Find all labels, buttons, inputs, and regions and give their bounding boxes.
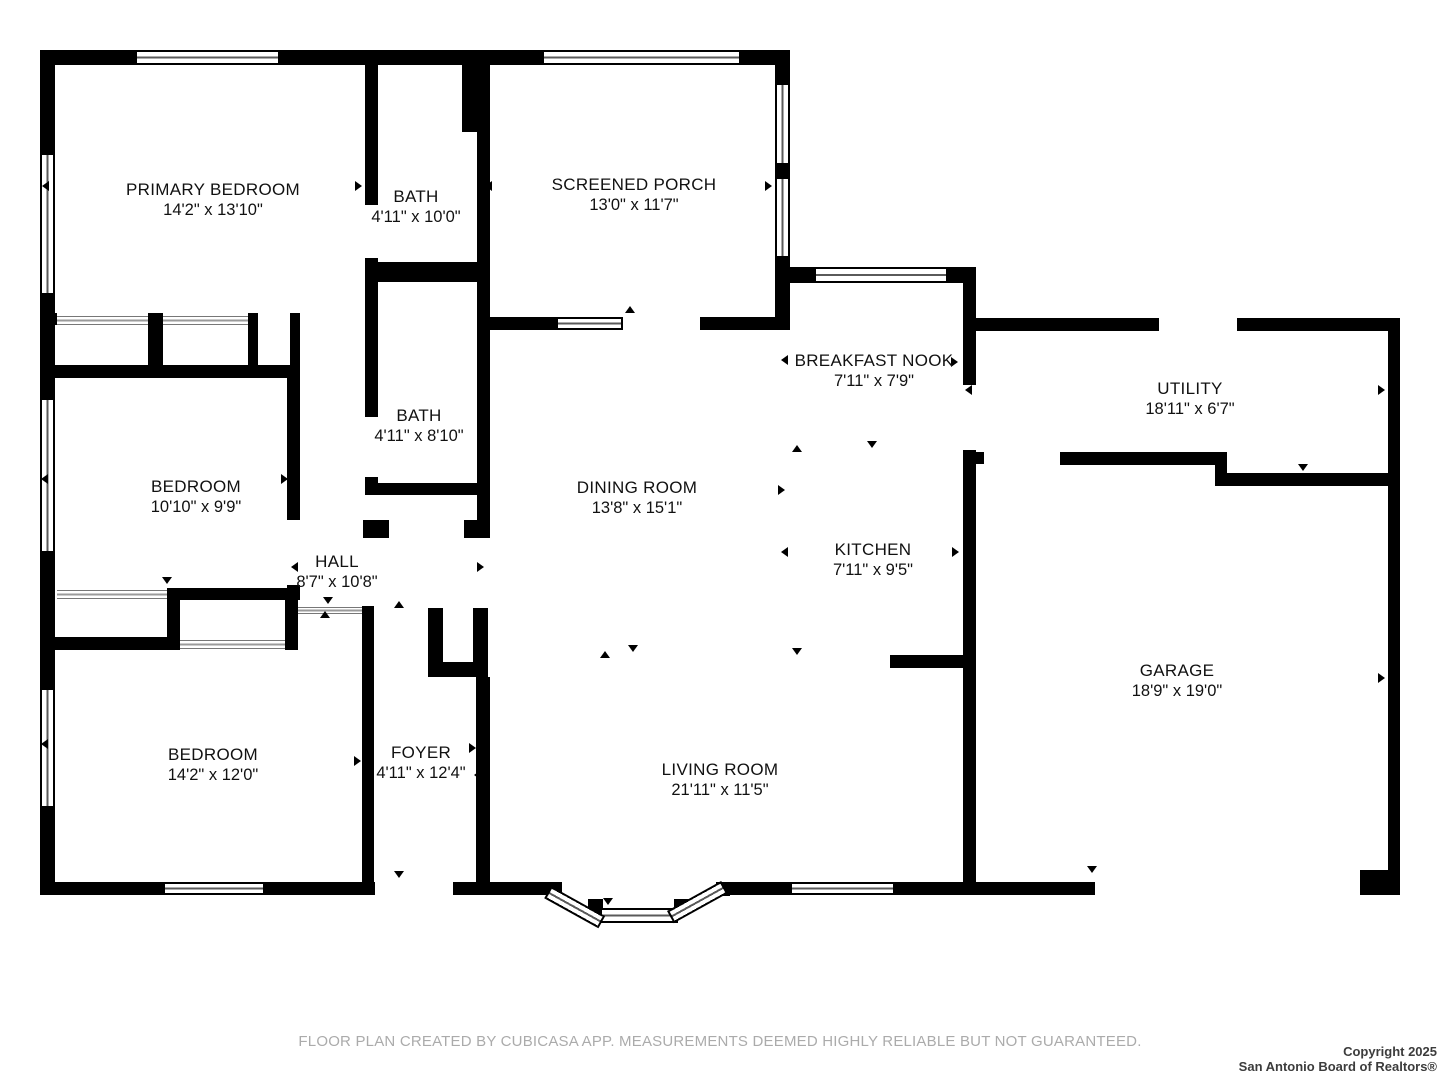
wall-segment <box>895 882 1095 895</box>
door-swing-marker-right <box>469 743 476 753</box>
closet-door-line <box>180 640 285 649</box>
wall-segment <box>365 262 490 282</box>
room-label-kitchen: KITCHEN7'11" x 9'5" <box>833 539 913 581</box>
disclaimer-text: FLOOR PLAN CREATED BY CUBICASA APP. MEAS… <box>0 1033 1440 1050</box>
room-label-bedroom-2: BEDROOM10'10" x 9'9" <box>151 476 242 518</box>
wall-segment <box>462 50 490 132</box>
room-label-dining-room: DINING ROOM13'8" x 15'1" <box>577 477 697 519</box>
door-swing-marker-left <box>965 385 972 395</box>
wall-segment <box>40 637 180 650</box>
wall-segment <box>48 313 57 325</box>
door-swing-marker-right <box>281 474 288 484</box>
door-swing-marker-up <box>625 306 635 313</box>
wall-segment <box>788 267 814 283</box>
door-swing-marker-up <box>792 445 802 452</box>
window <box>775 177 790 258</box>
wall-segment <box>890 655 976 668</box>
room-dimensions: 7'11" x 7'9" <box>795 371 954 392</box>
room-name: PRIMARY BEDROOM <box>126 179 300 200</box>
door-swing-marker-right <box>477 562 484 572</box>
closet-door-line <box>57 590 167 599</box>
door-swing-marker-right <box>765 181 772 191</box>
door-swing-marker-down <box>867 441 877 448</box>
room-name: UTILITY <box>1145 378 1234 399</box>
room-dimensions: 13'0" x 11'7" <box>552 195 717 216</box>
door-swing-marker-right <box>778 485 785 495</box>
wall-segment <box>1227 473 1388 486</box>
wall-segment <box>453 882 556 895</box>
room-name: LIVING ROOM <box>662 759 779 780</box>
copyright-notice: Copyright 2025 San Antonio Board of Real… <box>1239 1044 1437 1074</box>
room-label-screened-porch: SCREENED PORCH13'0" x 11'7" <box>552 174 717 216</box>
wall-segment <box>963 450 976 895</box>
door-swing-marker-up <box>163 367 173 374</box>
wall-segment <box>1237 318 1400 331</box>
wall-segment <box>1060 452 1227 465</box>
room-name: GARAGE <box>1132 660 1223 681</box>
wall-segment <box>428 662 488 677</box>
wall-segment <box>1360 870 1388 895</box>
room-dimensions: 13'8" x 15'1" <box>577 498 697 519</box>
door-swing-marker-right <box>354 756 361 766</box>
room-name: BEDROOM <box>168 744 259 765</box>
wall-segment <box>365 65 378 205</box>
wall-segment <box>287 378 300 520</box>
room-dimensions: 8'7" x 10'8" <box>296 572 377 593</box>
room-label-bath-2: BATH4'11" x 8'10" <box>374 405 463 447</box>
door-swing-marker-right <box>1378 673 1385 683</box>
wall-segment <box>700 317 790 330</box>
room-label-hall: HALL8'7" x 10'8" <box>296 551 377 593</box>
door-swing-marker-up <box>325 55 335 62</box>
door-swing-marker-left <box>363 744 370 754</box>
door-swing-marker-left <box>41 474 48 484</box>
copyright-line1: Copyright 2025 <box>1239 1044 1437 1059</box>
room-label-foyer: FOYER4'11" x 12'4" <box>376 742 465 784</box>
closet-door-line <box>298 607 362 614</box>
door-swing-marker-right <box>952 547 959 557</box>
room-label-breakfast-nook: BREAKFAST NOOK7'11" x 7'9" <box>795 350 954 392</box>
door-swing-marker-left <box>42 181 49 191</box>
wall-segment <box>973 318 1159 331</box>
window <box>814 267 948 283</box>
wall-segment <box>1388 318 1400 895</box>
window <box>163 882 265 895</box>
wall-segment <box>365 483 490 495</box>
room-dimensions: 18'9" x 19'0" <box>1132 681 1223 702</box>
wall-segment <box>365 285 378 417</box>
window <box>135 50 280 65</box>
wall-segment <box>477 130 490 265</box>
door-swing-marker-right <box>355 181 362 191</box>
window <box>775 83 790 165</box>
floor-plan: PRIMARY BEDROOM14'2" x 13'10"BATH4'11" x… <box>0 0 1440 1080</box>
room-name: BEDROOM <box>151 476 242 497</box>
wall-segment <box>975 452 984 464</box>
door-swing-marker-down <box>162 577 172 584</box>
door-swing-marker-down <box>1298 464 1308 471</box>
room-name: FOYER <box>376 742 465 763</box>
room-dimensions: 4'11" x 8'10" <box>374 426 463 447</box>
room-label-living-room: LIVING ROOM21'11" x 11'5" <box>662 759 779 801</box>
door-swing-marker-down <box>792 648 802 655</box>
door-swing-marker-down <box>323 597 333 604</box>
door-swing-marker-left <box>781 355 788 365</box>
closet-door-line <box>57 316 148 325</box>
closet-door-line <box>163 316 248 325</box>
wall-segment <box>285 588 298 650</box>
door-swing-marker-down <box>603 898 613 905</box>
room-name: HALL <box>296 551 377 572</box>
door-swing-marker-down <box>394 871 404 878</box>
door-swing-marker-up <box>600 651 610 658</box>
room-name: SCREENED PORCH <box>552 174 717 195</box>
wall-segment <box>167 588 298 600</box>
room-dimensions: 4'11" x 12'4" <box>376 763 465 784</box>
room-dimensions: 7'11" x 9'5" <box>833 560 913 581</box>
door-swing-marker-up <box>1090 454 1100 461</box>
wall-segment <box>1215 452 1227 486</box>
room-dimensions: 10'10" x 9'9" <box>151 497 242 518</box>
room-name: DINING ROOM <box>577 477 697 498</box>
room-name: BATH <box>371 186 460 207</box>
room-dimensions: 14'2" x 12'0" <box>168 765 259 786</box>
door-swing-marker-down <box>628 645 638 652</box>
room-label-bedroom-3: BEDROOM14'2" x 12'0" <box>168 744 259 786</box>
room-dimensions: 4'11" x 10'0" <box>371 207 460 228</box>
room-label-bath-1: BATH4'11" x 10'0" <box>371 186 460 228</box>
door-swing-marker-left <box>474 770 481 780</box>
room-label-primary-bedroom: PRIMARY BEDROOM14'2" x 13'10" <box>126 179 300 221</box>
door-swing-marker-up <box>320 611 330 618</box>
room-name: BATH <box>374 405 463 426</box>
wall-segment <box>775 63 790 83</box>
window <box>542 50 741 65</box>
door-swing-marker-up <box>415 55 425 62</box>
room-name: BREAKFAST NOOK <box>795 350 954 371</box>
room-label-utility: UTILITY18'11" x 6'7" <box>1145 378 1234 420</box>
wall-segment <box>363 520 389 538</box>
door-swing-marker-left <box>485 181 492 191</box>
door-swing-marker-left <box>41 739 48 749</box>
room-dimensions: 18'11" x 6'7" <box>1145 399 1234 420</box>
wall-segment <box>280 50 542 65</box>
room-dimensions: 14'2" x 13'10" <box>126 200 300 221</box>
wall-segment <box>483 317 558 330</box>
door-swing-marker-up <box>394 601 404 608</box>
door-swing-marker-right <box>1378 385 1385 395</box>
room-label-garage: GARAGE18'9" x 19'0" <box>1132 660 1223 702</box>
room-dimensions: 21'11" x 11'5" <box>662 780 779 801</box>
window <box>556 317 623 330</box>
wall-segment <box>40 50 135 65</box>
wall-segment <box>464 520 490 538</box>
door-swing-marker-left <box>781 547 788 557</box>
room-name: KITCHEN <box>833 539 913 560</box>
wall-segment <box>775 165 790 177</box>
door-swing-marker-down <box>1298 322 1308 329</box>
copyright-line2: San Antonio Board of Realtors® <box>1239 1059 1437 1074</box>
window <box>40 153 55 295</box>
wall-segment <box>477 262 490 538</box>
door-swing-marker-down <box>1087 866 1097 873</box>
window <box>790 882 895 895</box>
